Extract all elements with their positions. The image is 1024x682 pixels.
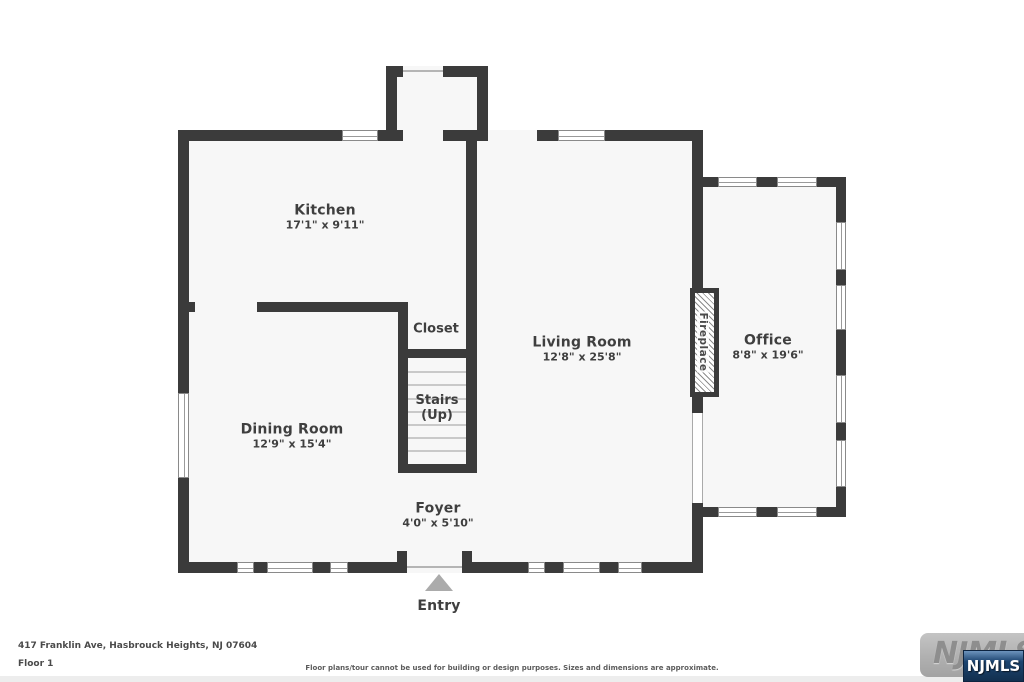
office-label: Office 8'8" x 19'6" — [732, 333, 803, 362]
living-office-opening — [692, 413, 703, 503]
window — [563, 562, 600, 573]
wall-segment — [386, 66, 397, 141]
kitchen-dims: 17'1" x 9'11" — [286, 219, 365, 232]
window — [836, 440, 846, 487]
entry-label: Entry — [417, 598, 460, 614]
stairs-label: Stairs (Up) — [416, 393, 459, 423]
window — [330, 562, 348, 573]
window — [836, 285, 846, 330]
kitchen-dining-wall — [257, 302, 408, 312]
stair-tread — [408, 437, 466, 439]
entry-arrow-icon — [425, 574, 453, 591]
wall-segment — [178, 562, 237, 573]
stair-tread — [408, 371, 466, 373]
window — [836, 375, 846, 423]
entry-door-opening — [407, 566, 462, 568]
foyer-dims: 4'0" x 5'10" — [402, 517, 473, 530]
rear-door-opening — [403, 70, 443, 72]
floor-label: Floor 1 — [18, 659, 53, 669]
floor-plan-canvas: Fireplace Kitchen 17'1" x 9'11" Living R… — [0, 0, 1024, 682]
kitchen-living-wall — [466, 130, 477, 473]
office-dims: 8'8" x 19'6" — [732, 349, 803, 362]
dining-room-name: Dining Room — [241, 422, 344, 438]
wall-segment — [692, 503, 703, 573]
wall-segment — [817, 507, 846, 517]
dining-room-label: Dining Room 12'9" x 15'4" — [241, 422, 344, 451]
wall-segment — [462, 562, 528, 573]
wall-segment — [545, 562, 563, 573]
wall-segment — [836, 423, 846, 440]
wall-segment — [605, 130, 703, 141]
fireplace-label: Fireplace — [697, 311, 709, 372]
wall-segment — [178, 130, 189, 393]
njmls-badge-text: NJMLS — [967, 657, 1020, 675]
office-name: Office — [732, 333, 803, 349]
closet-label: Closet — [413, 322, 459, 337]
window — [178, 393, 189, 478]
stairs-wall — [398, 349, 408, 473]
window — [777, 507, 817, 517]
window — [267, 562, 313, 573]
entry-name: Entry — [417, 598, 460, 614]
wall-segment — [386, 66, 403, 77]
entry-door-jamb — [462, 551, 472, 562]
window — [777, 177, 817, 187]
wall-segment — [443, 66, 488, 77]
foyer-label: Foyer 4'0" x 5'10" — [402, 501, 473, 530]
wall-segment — [757, 177, 777, 187]
stair-tread — [408, 384, 466, 386]
wall-segment — [313, 562, 330, 573]
wall-segment — [254, 562, 267, 573]
window — [558, 130, 605, 141]
wall-segment — [348, 562, 407, 573]
wall-segment — [537, 130, 558, 141]
window — [237, 562, 254, 573]
kitchen-name: Kitchen — [286, 203, 365, 219]
window — [528, 562, 545, 573]
wall-segment — [178, 478, 189, 573]
foyer-name: Foyer — [402, 501, 473, 517]
window — [718, 507, 757, 517]
property-address: 417 Franklin Ave, Hasbrouck Heights, NJ … — [18, 641, 257, 651]
stair-tread — [408, 424, 466, 426]
wall-segment — [703, 507, 718, 517]
wall-segment — [836, 330, 846, 375]
living-room-dims: 12'8" x 25'8" — [532, 351, 631, 364]
stairs-name-line2: (Up) — [416, 408, 459, 423]
wall-segment — [178, 130, 342, 141]
entry-door-jamb — [397, 551, 407, 562]
wall-segment — [692, 397, 703, 413]
window — [618, 562, 642, 573]
closet-name: Closet — [413, 322, 459, 337]
window — [718, 177, 757, 187]
wall-segment — [600, 562, 618, 573]
wall-segment — [178, 302, 195, 312]
wall-segment — [836, 177, 846, 222]
stairs-name-line1: Stairs — [416, 393, 459, 408]
disclaimer-text: Floor plans/tour cannot be used for buil… — [305, 664, 718, 672]
njmls-badge-logo: NJMLS — [963, 650, 1024, 682]
stairs-wall — [398, 464, 477, 473]
living-room-name: Living Room — [532, 335, 631, 351]
kitchen-label: Kitchen 17'1" x 9'11" — [286, 203, 365, 232]
stair-tread — [408, 450, 466, 452]
footer-strip — [0, 676, 1024, 682]
wall-segment — [477, 66, 488, 141]
wall-segment — [692, 130, 703, 288]
wall-segment — [836, 270, 846, 285]
window — [836, 222, 846, 270]
living-room-label: Living Room 12'8" x 25'8" — [532, 335, 631, 364]
wall-segment — [757, 507, 777, 517]
wall-segment — [703, 177, 718, 187]
closet-wall — [398, 349, 477, 358]
dining-room-dims: 12'9" x 15'4" — [241, 438, 344, 451]
window — [342, 130, 378, 141]
